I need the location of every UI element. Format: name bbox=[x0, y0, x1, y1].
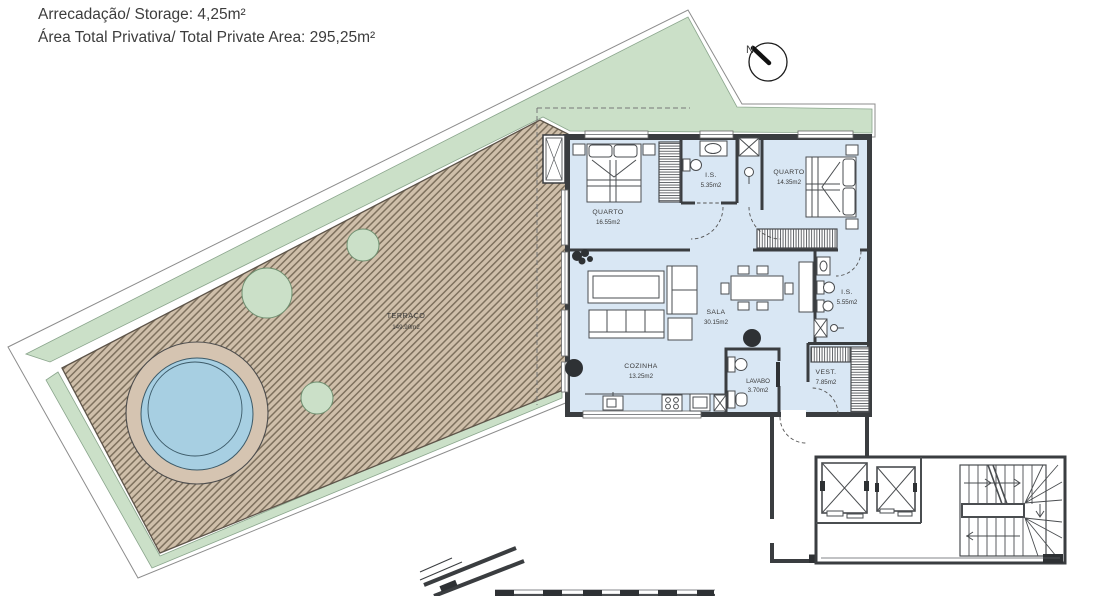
stair-rail bbox=[962, 504, 1024, 517]
svg-text:7.85m2: 7.85m2 bbox=[816, 379, 837, 386]
bed-quarto-2 bbox=[806, 145, 858, 229]
window-top-2 bbox=[700, 131, 733, 138]
oven bbox=[690, 394, 710, 411]
terrace: TERRAÇO 149.90m2 bbox=[62, 120, 568, 553]
svg-text:SALA: SALA bbox=[707, 309, 726, 316]
svg-text:30.15m2: 30.15m2 bbox=[704, 319, 729, 326]
svg-text:I.S.: I.S. bbox=[705, 172, 717, 179]
entry-opening bbox=[781, 410, 806, 419]
chimney-shaft bbox=[543, 135, 565, 183]
window-top-3 bbox=[798, 131, 853, 138]
column-1 bbox=[743, 329, 761, 347]
tall-cabinet bbox=[799, 262, 813, 312]
column-2 bbox=[565, 359, 583, 377]
annex-window-wall bbox=[495, 590, 715, 596]
north-label: N bbox=[746, 44, 754, 56]
svg-text:16.55m2: 16.55m2 bbox=[596, 219, 621, 226]
svg-text:LAVABO: LAVABO bbox=[746, 378, 770, 385]
floor-plan-drawing: TERRAÇO 149.90m2 bbox=[0, 0, 1117, 596]
sofa-large bbox=[589, 310, 664, 338]
svg-text:3.70m2: 3.70m2 bbox=[748, 387, 769, 394]
side-table bbox=[668, 318, 692, 340]
stair-core bbox=[816, 457, 1065, 563]
terrace-deck bbox=[62, 120, 568, 553]
wardrobe-quarto-2 bbox=[757, 229, 837, 248]
annex-building bbox=[420, 548, 715, 596]
svg-text:TERRAÇO: TERRAÇO bbox=[387, 311, 426, 320]
floor-plan-page: Arrecadação/ Storage: 4,25m² Área Total … bbox=[0, 0, 1117, 596]
lavabo-door-leaf bbox=[776, 362, 780, 387]
shaft-box bbox=[714, 395, 726, 411]
svg-text:5.55m2: 5.55m2 bbox=[837, 299, 858, 306]
sofa-small bbox=[667, 266, 697, 314]
svg-text:VEST.: VEST. bbox=[816, 369, 837, 376]
svg-text:COZINHA: COZINHA bbox=[624, 363, 657, 370]
planter-circle-top bbox=[347, 229, 379, 261]
planter-circle-large bbox=[242, 268, 292, 318]
north-indicator: N bbox=[746, 43, 787, 81]
svg-text:149.90m2: 149.90m2 bbox=[392, 324, 420, 331]
stove bbox=[662, 395, 682, 411]
svg-text:QUARTO: QUARTO bbox=[773, 169, 804, 176]
svg-text:I.S.: I.S. bbox=[841, 289, 853, 296]
window-left-2 bbox=[562, 252, 569, 304]
pool bbox=[126, 342, 268, 484]
apartment: QUARTO 16.55m2 I.S. 5.35m2 QUARTO 14.35m… bbox=[543, 131, 872, 443]
svg-text:QUARTO: QUARTO bbox=[592, 209, 623, 216]
svg-text:14.35m2: 14.35m2 bbox=[777, 179, 802, 186]
planter-circle-small bbox=[301, 382, 333, 414]
wardrobe-quarto-1 bbox=[659, 142, 680, 202]
svg-text:13.25m2: 13.25m2 bbox=[629, 373, 654, 380]
window-left-3 bbox=[562, 310, 569, 356]
window-top-1 bbox=[585, 131, 648, 138]
window-bottom bbox=[583, 411, 701, 418]
svg-text:5.35m2: 5.35m2 bbox=[701, 182, 722, 189]
north-needle-icon bbox=[753, 48, 769, 63]
window-left-1 bbox=[562, 190, 569, 245]
